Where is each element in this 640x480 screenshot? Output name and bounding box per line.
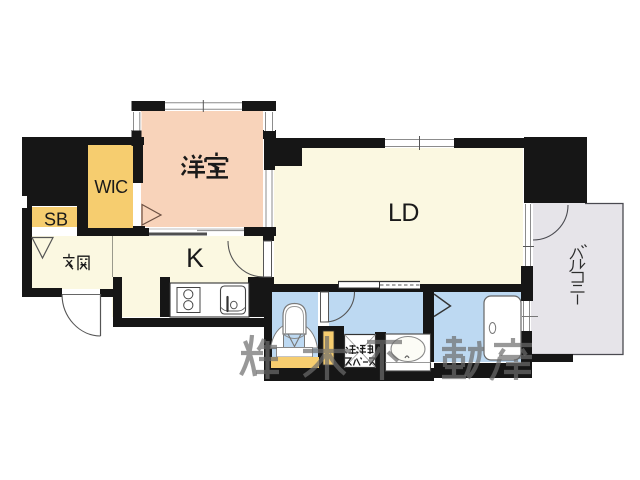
svg-text:LD: LD [388, 199, 419, 227]
svg-text:WIC: WIC [94, 177, 128, 197]
svg-text:SB: SB [44, 210, 68, 230]
svg-text:K: K [186, 243, 204, 273]
